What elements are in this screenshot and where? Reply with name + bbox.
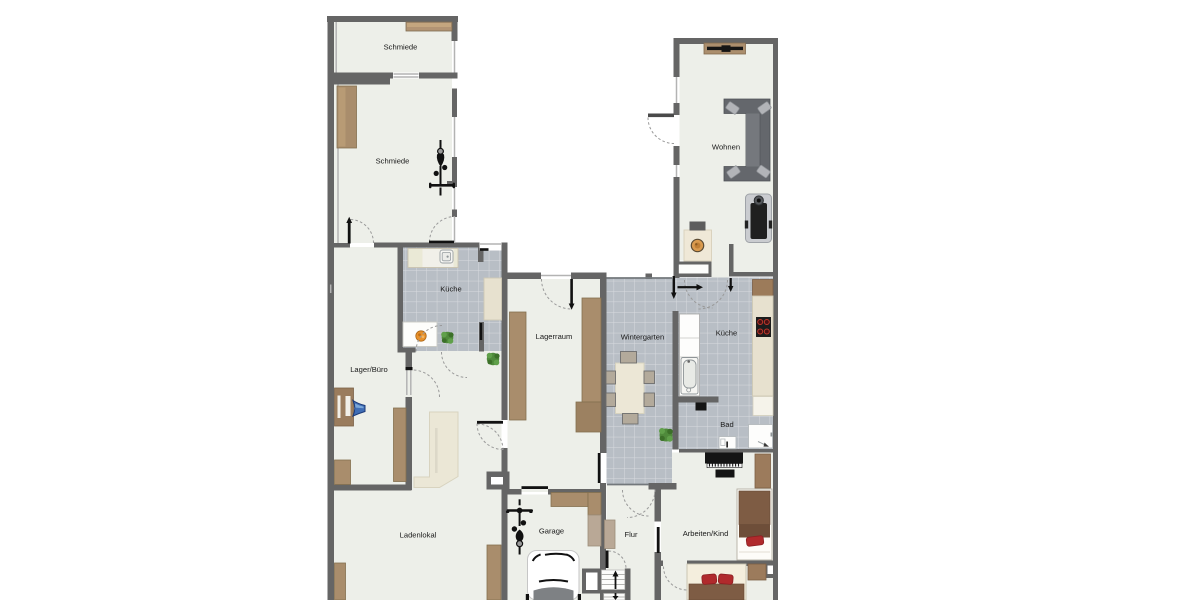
svg-text:Arbeiten/Kind: Arbeiten/Kind xyxy=(683,529,729,538)
svg-text:Wintergarten: Wintergarten xyxy=(621,333,664,342)
svg-text:Lager/Büro: Lager/Büro xyxy=(350,365,388,374)
svg-text:Schmiede: Schmiede xyxy=(384,43,418,52)
svg-text:Küche: Küche xyxy=(716,329,738,338)
svg-text:Schmiede: Schmiede xyxy=(376,157,410,166)
svg-text:Wohnen: Wohnen xyxy=(712,143,740,152)
svg-text:Flur: Flur xyxy=(624,530,638,539)
svg-text:Küche: Küche xyxy=(440,285,462,294)
svg-text:Bad: Bad xyxy=(720,420,734,429)
svg-text:Lagerraum: Lagerraum xyxy=(536,332,573,341)
svg-text:Garage: Garage xyxy=(539,527,564,536)
svg-text:Ladenlokal: Ladenlokal xyxy=(400,531,437,540)
